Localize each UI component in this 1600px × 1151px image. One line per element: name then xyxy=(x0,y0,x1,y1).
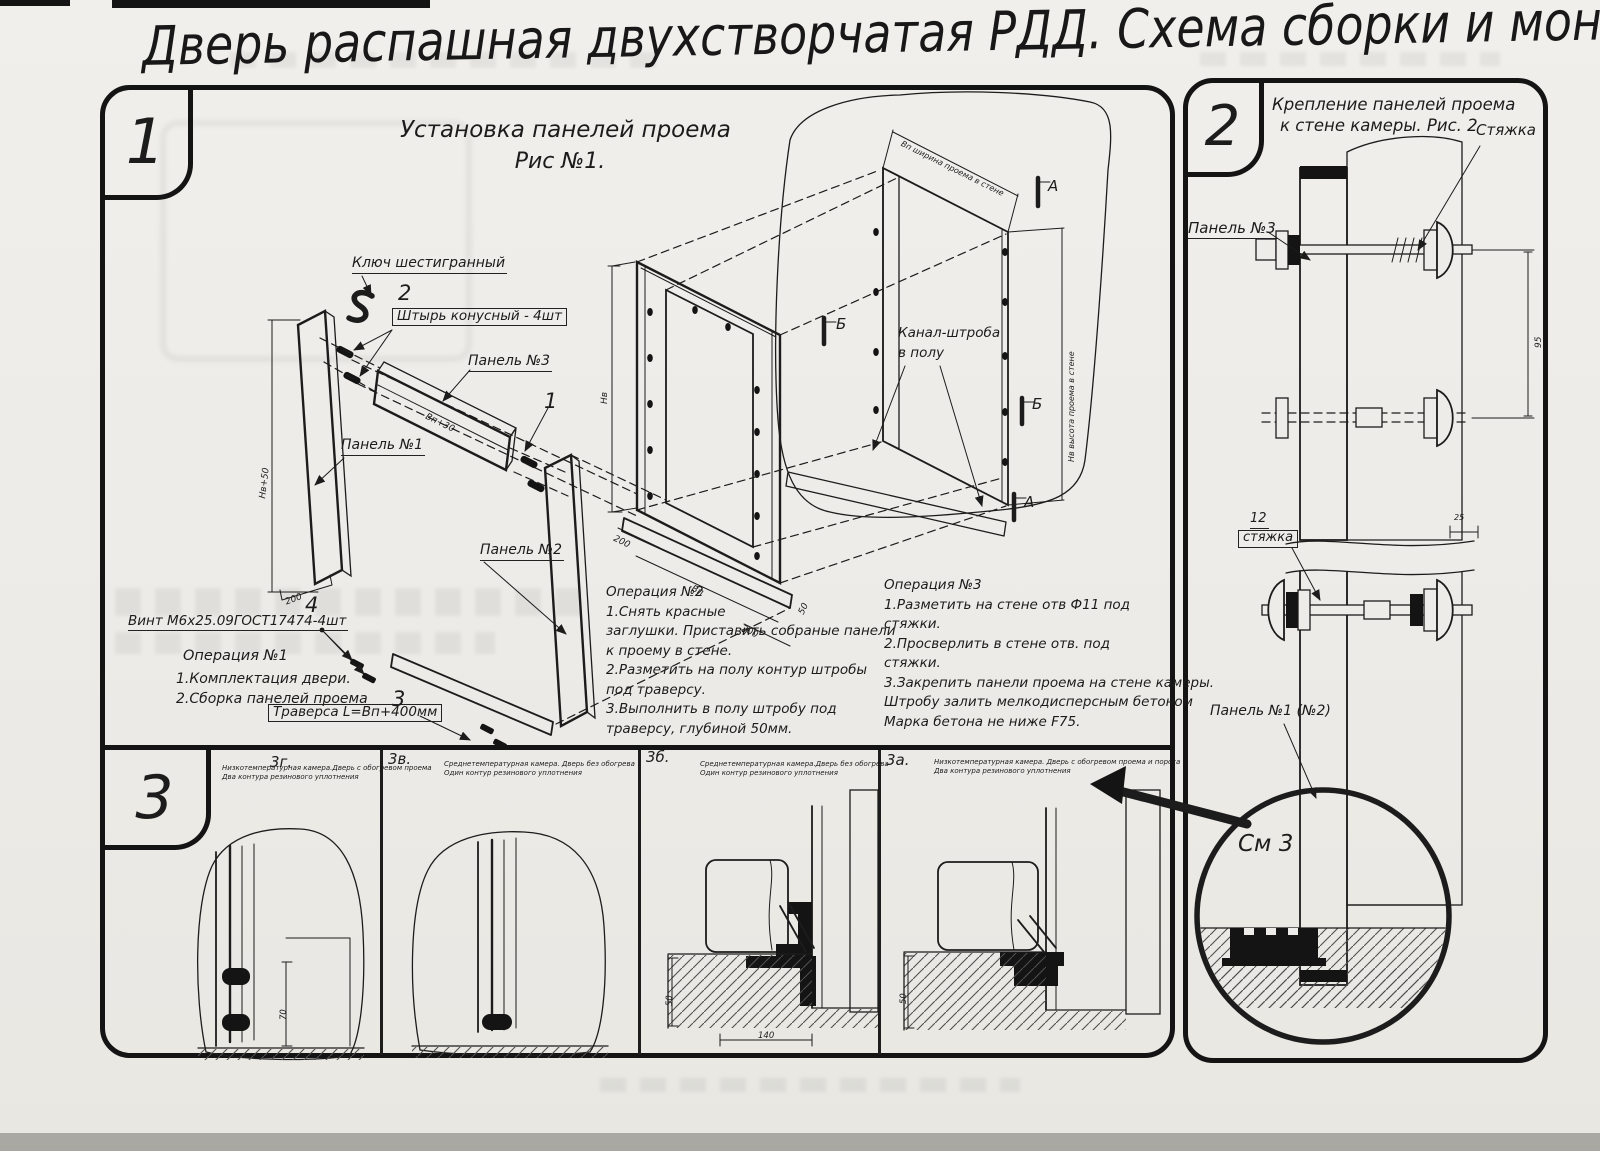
dim-label: Нв xyxy=(600,392,610,404)
operation2-step: 3.Выполнить в полу штробу под xyxy=(606,700,896,720)
screw-label: Винт М6х25.09ГОСТ17474-4шт xyxy=(128,614,348,631)
operation3-step: 3.Закрепить панели проема на стене камер… xyxy=(884,674,1214,694)
caption-line: Среднетемпературная камера. Дверь без об… xyxy=(444,760,635,769)
operation3-block: Операция №3 1.Разметить на стене отв Ф11… xyxy=(884,576,1214,732)
hex-key-label: Ключ шестигранный xyxy=(352,256,507,274)
scan-edge-artifact xyxy=(112,0,430,8)
scan-edge-artifact xyxy=(0,0,70,6)
bleed-through-artifact xyxy=(600,1078,1020,1092)
drawing-title: Дверь распашная двухстворчатая РДД. Схем… xyxy=(142,0,1418,78)
operation2-step: траверсу, глубиной 50мм. xyxy=(606,720,896,740)
dim-label: Нв высота проема в стене xyxy=(1068,351,1077,462)
section2-title: Крепление панелей проема xyxy=(1272,96,1515,114)
see-detail-3-label: См 3 xyxy=(1238,832,1293,858)
floor-channel-label: Канал-штроба xyxy=(898,326,1000,341)
dim-label: 25 xyxy=(1454,514,1464,523)
operation3-step: стяжки. xyxy=(884,615,1214,635)
section-marker-b: Б xyxy=(1032,396,1042,413)
detail-divider xyxy=(638,750,641,1055)
panel3-label-s2: Панель №3 xyxy=(1188,220,1278,239)
operation2-step: под траверсу. xyxy=(606,681,896,701)
traverse-label: Траверса L=Вп+400мм xyxy=(268,704,442,722)
floor-channel-label2: в полу xyxy=(898,346,944,361)
dim-label: 50 xyxy=(900,993,910,1004)
dim-label: 50 xyxy=(666,995,676,1006)
caption-line: Один контур резинового уплотнения xyxy=(444,769,635,778)
section-marker-b: Б xyxy=(836,316,846,333)
scan-edge-artifact xyxy=(0,1133,1600,1151)
tie-rod-label: Стяжка xyxy=(1476,122,1536,139)
caption-line: Два контура резинового уплотнения xyxy=(222,773,432,782)
operation3-step: Штробу залить мелкодисперсным бетоном xyxy=(884,693,1214,713)
operation3-step: стяжки. xyxy=(884,654,1214,674)
operation2-block: Операция №2 1.Снять красные заглушки. Пр… xyxy=(606,583,896,739)
scanned-drawing-page: Дверь распашная двухстворчатая РДД. Схем… xyxy=(0,0,1600,1151)
caption-line: Среднетемпературная камера.Дверь без обо… xyxy=(700,760,889,769)
operation3-step: 2.Просверлить в стене отв. под xyxy=(884,635,1214,655)
detail-3v-id: 3в. xyxy=(388,751,411,768)
section1-subtitle: Рис №1. xyxy=(400,150,720,175)
section-marker-a: А xyxy=(1048,178,1058,195)
tie-rod-label-2: стяжка xyxy=(1238,530,1298,548)
detail-3a-caption: Низкотемпературная камера. Дверь с обогр… xyxy=(934,758,1180,776)
operation3-step: Марка бетона не ниже F75. xyxy=(884,713,1214,733)
caption-line: Два контура резинового уплотнения xyxy=(934,767,1180,776)
operation1-title: Операция №1 xyxy=(183,648,288,664)
panel12-label: Панель №1 (№2) xyxy=(1210,704,1331,720)
caption-line: Низкотемпературная камера. Дверь с обогр… xyxy=(934,758,1180,767)
operation1-step: 1.Комплектация двери. xyxy=(176,672,351,688)
detail-divider xyxy=(380,750,383,1055)
operation2-title: Операция №2 xyxy=(606,583,896,603)
section3-badge: 3 xyxy=(103,750,211,850)
section1-badge: 1 xyxy=(103,88,193,200)
operation2-step: к проему в стене. xyxy=(606,642,896,662)
section1-title: Установка панелей проема xyxy=(400,118,720,144)
detail-3a-id: 3а. xyxy=(886,752,910,769)
operation3-title: Операция №3 xyxy=(884,576,1214,596)
cone-pin-label: Штырь конусный - 4шт xyxy=(392,308,567,326)
panel2-label: Панель №2 xyxy=(480,543,564,561)
operation3-step: 1.Разметить на стене отв Ф11 под xyxy=(884,596,1214,616)
caption-line: Один контур резинового уплотнения xyxy=(700,769,889,778)
dim-label: 70 xyxy=(280,1009,290,1020)
tie-position-number: 12 xyxy=(1250,512,1269,529)
section2-badge: 2 xyxy=(1186,81,1264,177)
callout-2: 2 xyxy=(398,282,411,306)
dim-label: 95 xyxy=(1534,337,1544,348)
callout-1: 1 xyxy=(544,390,557,414)
detail-3v-caption: Среднетемпературная камера. Дверь без об… xyxy=(444,760,635,778)
detail-divider xyxy=(878,750,881,1055)
panel3-label: Панель №3 xyxy=(468,354,552,372)
dim-label: 140 xyxy=(758,1032,774,1042)
section2-subtitle: к стене камеры. Рис. 2 xyxy=(1280,117,1478,135)
operation2-step: 2.Разметить на полу контур штробы xyxy=(606,661,896,681)
section-marker-a: А xyxy=(1024,494,1034,511)
panel1-label: Панель №1 xyxy=(341,438,425,456)
operation2-step: 1.Снять красные xyxy=(606,603,896,623)
detail-3b-id: 3б. xyxy=(646,749,670,766)
detail-3b-caption: Среднетемпературная камера.Дверь без обо… xyxy=(700,760,889,778)
